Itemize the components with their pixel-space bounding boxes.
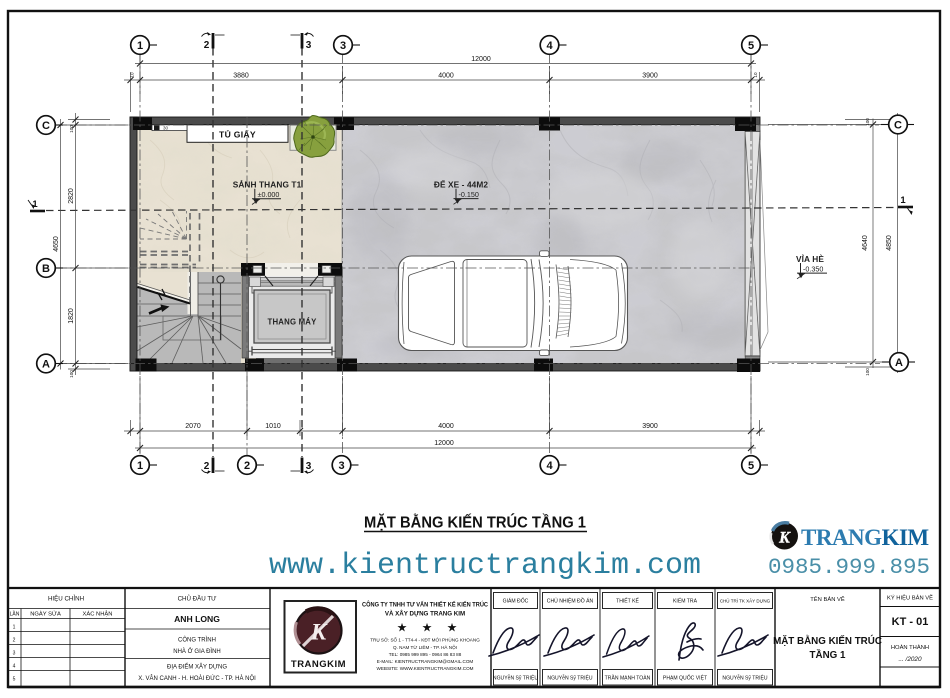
svg-text:KT - 01: KT - 01 <box>892 616 929 628</box>
svg-text:★: ★ <box>422 621 433 635</box>
svg-text:3: 3 <box>340 40 346 52</box>
svg-text:★: ★ <box>447 621 458 635</box>
svg-text:TRANGKIM: TRANGKIM <box>291 659 346 670</box>
svg-text:3: 3 <box>306 40 312 51</box>
svg-text:K: K <box>310 620 328 645</box>
svg-text:HIỆU CHỈNH: HIỆU CHỈNH <box>48 595 84 603</box>
svg-text:CHỦ ĐẦU TƯ: CHỦ ĐẦU TƯ <box>178 596 218 603</box>
svg-text:100: 100 <box>865 118 870 126</box>
svg-text:4: 4 <box>546 40 553 52</box>
svg-text:TRANGKIM: TRANGKIM <box>801 525 929 550</box>
svg-text:TRẦN MẠNH TOÀN: TRẦN MẠNH TOÀN <box>605 675 651 682</box>
svg-text:CHỦ TRÌ TK XÂY DỰNG: CHỦ TRÌ TK XÂY DỰNG <box>720 598 771 604</box>
svg-text:CÔNG TY TNHH TƯ VẤN THIẾT KẾ K: CÔNG TY TNHH TƯ VẤN THIẾT KẾ KIẾN TRÚC <box>362 601 489 609</box>
svg-text:CHỦ NHIỆM ĐỒ ÁN: CHỦ NHIỆM ĐỒ ÁN <box>547 597 594 605</box>
svg-text:MẶT BẰNG KIẾN TRÚC: MẶT BẰNG KIẾN TRÚC <box>773 635 882 647</box>
svg-text:4: 4 <box>13 664 16 670</box>
svg-text:3: 3 <box>13 651 16 657</box>
svg-text:2: 2 <box>244 460 250 472</box>
svg-text:www.kientructrangkim.com: www.kientructrangkim.com <box>269 549 701 583</box>
svg-text:GIÁM ĐỐC: GIÁM ĐỐC <box>503 598 529 605</box>
svg-text:30: 30 <box>163 126 169 131</box>
svg-text:100: 100 <box>865 368 870 376</box>
svg-text:VỈA HÈ: VỈA HÈ <box>796 253 824 264</box>
svg-text:XÁC NHẬN: XÁC NHẬN <box>83 611 113 618</box>
svg-text:NHÀ Ở GIA ĐÌNH: NHÀ Ở GIA ĐÌNH <box>173 648 220 655</box>
svg-text:... /2020: ... /2020 <box>898 656 922 663</box>
svg-text:TỦ GIẤY: TỦ GIẤY <box>219 129 256 140</box>
svg-text:A: A <box>42 358 50 370</box>
svg-text:2: 2 <box>13 638 16 644</box>
svg-text:4650: 4650 <box>53 236 60 252</box>
svg-text:SẢNH THANG T1: SẢNH THANG T1 <box>233 178 302 189</box>
svg-text:2: 2 <box>204 461 210 472</box>
svg-text:1010: 1010 <box>265 423 281 430</box>
svg-text:2: 2 <box>204 40 210 51</box>
svg-text:2070: 2070 <box>185 423 201 430</box>
svg-text:B: B <box>42 263 50 275</box>
svg-text:3: 3 <box>306 461 312 472</box>
svg-text:12000: 12000 <box>434 440 454 447</box>
svg-text:4000: 4000 <box>438 73 454 80</box>
svg-text:NGUYễN Sỹ TRIỆU: NGUYễN Sỹ TRIỆU <box>493 674 539 682</box>
svg-text:100: 100 <box>69 125 74 133</box>
svg-text:5: 5 <box>748 40 754 52</box>
svg-text:3880: 3880 <box>233 73 249 80</box>
svg-text:C: C <box>894 119 902 131</box>
svg-text:NGUYễN Sỹ TRIỆU: NGUYễN Sỹ TRIỆU <box>547 674 593 682</box>
svg-text:12000: 12000 <box>471 56 491 63</box>
svg-text:4000: 4000 <box>438 423 454 430</box>
svg-text:TEL: 0985 999 895 - 0964 86 83: TEL: 0985 999 895 - 0964 86 83 88 <box>389 652 462 657</box>
svg-text:VÀ XÂY DỰNG TRANG KIM: VÀ XÂY DỰNG TRANG KIM <box>385 611 465 618</box>
svg-text:X. VÂN CANH - H. HOÀI ĐỨC - TP: X. VÂN CANH - H. HOÀI ĐỨC - TP. HÀ NỘI <box>138 675 256 682</box>
svg-text:NGUYễN Sỹ TRIỆU: NGUYễN Sỹ TRIỆU <box>722 674 768 682</box>
svg-text:ĐỊA ĐIỂM XÂY DỰNG: ĐỊA ĐIỂM XÂY DỰNG <box>167 664 227 671</box>
svg-text:TÊN BẢN VẼ: TÊN BẢN VẼ <box>810 595 845 603</box>
svg-text:C: C <box>42 120 50 132</box>
svg-text:Q. NAM TỪ LIÊM - TP. HÀ NỘI: Q. NAM TỪ LIÊM - TP. HÀ NỘI <box>393 643 457 650</box>
svg-text:PHẠM QUỐC VIỆT: PHẠM QUỐC VIỆT <box>663 674 707 682</box>
svg-text:ANH LONG: ANH LONG <box>174 614 220 624</box>
svg-text:1: 1 <box>137 40 143 52</box>
svg-text:5: 5 <box>748 460 754 472</box>
svg-text:MẶT BẰNG KIẾN TRÚC TẦNG 1: MẶT BẰNG KIẾN TRÚC TẦNG 1 <box>364 513 586 532</box>
svg-text:1820: 1820 <box>68 308 75 324</box>
svg-text:5: 5 <box>13 677 16 683</box>
svg-text:10: 10 <box>753 72 758 78</box>
svg-text:1: 1 <box>137 460 143 472</box>
svg-text:1: 1 <box>13 625 16 631</box>
svg-text:KÝ HIỆU BẢN VẼ: KÝ HIỆU BẢN VẼ <box>887 594 933 602</box>
svg-text:HOÀN THÀNH: HOÀN THÀNH <box>891 644 929 651</box>
svg-text:★: ★ <box>397 621 408 635</box>
svg-text:100: 100 <box>69 370 74 378</box>
svg-text:CÔNG TRÌNH: CÔNG TRÌNH <box>178 637 216 644</box>
svg-text:2820: 2820 <box>68 188 75 204</box>
svg-text:4: 4 <box>546 460 553 472</box>
svg-text:NGÀY SỬA: NGÀY SỬA <box>30 611 61 618</box>
svg-text:THIẾT KẾ: THIẾT KẾ <box>616 598 639 605</box>
svg-text:ĐỂ XE - 44M2: ĐỂ XE - 44M2 <box>434 178 489 189</box>
svg-text:KIỂM TRA: KIỂM TRA <box>673 598 698 605</box>
svg-text:10: 10 <box>130 72 135 78</box>
svg-text:LẦN: LẦN <box>10 611 20 618</box>
svg-text:4640: 4640 <box>862 235 869 251</box>
svg-text:TẦNG 1: TẦNG 1 <box>810 650 846 661</box>
svg-text:-0.350: -0.350 <box>803 264 823 273</box>
svg-text:4850: 4850 <box>886 235 893 251</box>
svg-text:0985.999.895: 0985.999.895 <box>768 554 930 580</box>
svg-text:3900: 3900 <box>642 423 658 430</box>
svg-text:A: A <box>895 357 903 369</box>
svg-text:E-MAIL: KIENTRUCTRANGKIM@GMAIL: E-MAIL: KIENTRUCTRANGKIM@GMAIL.COM <box>377 659 474 664</box>
svg-text:1: 1 <box>900 195 906 206</box>
svg-text:TRỤ SỞ: SỐ 1 - TT4-4 - KĐT MỚI: TRỤ SỞ: SỐ 1 - TT4-4 - KĐT MỚI PHÙNG KHO… <box>370 637 480 643</box>
svg-text:3900: 3900 <box>642 73 658 80</box>
svg-text:WEBSITE: WWW.KIENTRUCTRANGKIM.: WEBSITE: WWW.KIENTRUCTRANGKIM.COM <box>377 666 474 671</box>
svg-text:-0.150: -0.150 <box>459 190 479 199</box>
svg-text:3: 3 <box>338 460 344 472</box>
svg-text:K: K <box>778 530 791 547</box>
svg-text:THANG MÁY: THANG MÁY <box>267 318 317 327</box>
svg-text:±0.000: ±0.000 <box>258 190 280 199</box>
